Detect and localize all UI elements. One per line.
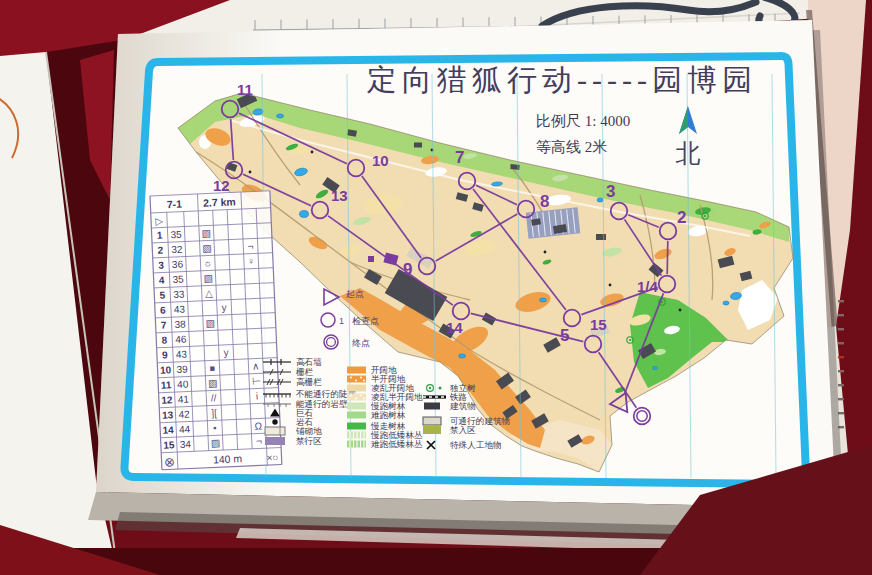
control-row-symbol-d: △ (205, 287, 213, 298)
area-swatch-dot (355, 398, 357, 400)
legend-point-label: 特殊人工地物 (450, 440, 502, 450)
control-row-code: 35 (170, 229, 182, 240)
area-swatch (347, 412, 366, 419)
pond (597, 198, 603, 202)
point-feature-dot (544, 251, 547, 254)
control-row-number: 15 (163, 439, 175, 450)
pond (459, 354, 466, 358)
control-row-symbol-g: ∧ (252, 360, 260, 371)
legend-point-label: 禁入区 (450, 425, 476, 435)
area-swatch-dot (355, 380, 357, 382)
area-swatch (347, 423, 366, 430)
control-number: 11 (237, 81, 253, 98)
tree-icon-dot (429, 387, 431, 389)
control-row-symbol-g: ⊢ (252, 375, 261, 386)
control-row-symbol-d: ▨ (211, 437, 221, 448)
legend-line-label: 栅栏 (296, 367, 314, 377)
control-row-symbol-g: ¬ (247, 241, 253, 252)
control-row-symbol-d: // (211, 392, 217, 403)
control-row-symbol-g: Ω (254, 420, 262, 431)
control-row-symbol-d: ▨ (203, 272, 213, 283)
area-swatch (347, 394, 366, 401)
card-footer-left-icon: ⊗ (164, 454, 176, 469)
tree-icon-small (439, 387, 442, 390)
control-row-number: 6 (160, 304, 166, 315)
pond (653, 367, 658, 370)
control-row-code: 32 (171, 244, 183, 255)
contour-label: 等高线 2米 (536, 139, 607, 155)
control-number: 5 (560, 326, 569, 345)
area-swatch-dot (363, 398, 365, 400)
control-description-card: 7-1 2.7 km ▷ 135▨232▨¬336☼♀435▨533△643y7… (150, 191, 282, 470)
legend-point-label: 建筑物 (449, 401, 476, 411)
legend-area-label: 难跑树林 (370, 410, 406, 420)
finish-legend-label: 终点 (352, 338, 370, 348)
control-row-code: 46 (175, 334, 187, 345)
side-text-mark (838, 370, 844, 372)
control-row-code: 38 (174, 319, 186, 330)
side-text-mark (838, 342, 844, 344)
control-row-code: 41 (178, 393, 190, 404)
control-row-number: 9 (162, 349, 168, 360)
point-feature-dot (609, 284, 612, 287)
scale-label: 比例尺 1: 4000 (536, 113, 630, 129)
side-text-mark (838, 384, 844, 386)
building (596, 234, 606, 240)
area-swatch-dot (360, 377, 362, 379)
area-swatch-dot (363, 380, 365, 382)
control-row-symbol-e: y (223, 347, 228, 358)
control-row-number: 11 (161, 379, 172, 390)
side-text-mark (838, 328, 844, 330)
control-row-number: 10 (160, 364, 172, 375)
control-row-symbol-g: ♀ (247, 255, 255, 266)
control-number: 8 (540, 192, 549, 211)
course-length: 2.7 km (203, 195, 236, 208)
control-row-symbol-g: ¬ (256, 435, 262, 446)
area-swatch (347, 367, 366, 374)
legend-line-label: 铺砌地 (295, 426, 322, 436)
control-number: 12 (213, 177, 230, 194)
card-footer-right-icon: ×○ (266, 452, 278, 464)
point-feature-dot (679, 309, 682, 312)
area-swatch (347, 385, 366, 392)
control-row-code: 42 (178, 408, 190, 419)
side-text-mark (838, 356, 844, 358)
building-icon (424, 403, 440, 410)
control-number: 9 (403, 260, 412, 279)
control-number: 3 (606, 182, 615, 201)
pond (300, 211, 309, 218)
control-row-number: 13 (162, 409, 174, 420)
control-row-code: 33 (173, 289, 185, 300)
pond (723, 301, 729, 305)
area-swatch-dot (360, 395, 362, 397)
control-row-code: 35 (172, 274, 184, 285)
control-number: 7 (455, 148, 464, 167)
passable-building-icon (423, 417, 441, 425)
start-row-symbol: ▷ (155, 215, 163, 226)
control-row-number: 5 (159, 289, 165, 300)
control-row-symbol-d: ☼ (203, 257, 213, 268)
control-row-symbol-d: ▨ (202, 242, 212, 253)
point-feature-dot (311, 151, 314, 154)
checkpoint-number: 1 (339, 316, 344, 326)
area-swatch-dot (350, 395, 352, 397)
control-row-number: 7 (161, 319, 167, 330)
area-swatch-dot (350, 377, 352, 379)
control-row-code: 43 (174, 304, 186, 315)
isolated-tree-dot (704, 215, 706, 217)
map-title: 定向猎狐行动-----园博园 (367, 63, 757, 96)
rock-icon (272, 419, 277, 424)
control-row-symbol-d: ■ (209, 363, 215, 373)
control-row-code: 39 (176, 364, 188, 375)
no-go-area-icon (265, 437, 285, 445)
control-row-number: 12 (161, 394, 173, 405)
side-text-mark (838, 300, 844, 302)
control-number: 2 (677, 208, 686, 227)
paved-area-icon (265, 427, 285, 435)
course-number: 7-1 (167, 198, 183, 211)
control-row-symbol-g: i (256, 390, 259, 401)
control-row-code: 44 (179, 423, 191, 434)
start-legend-label: 起点 (346, 289, 364, 299)
legend-line-label: 禁行区 (296, 436, 322, 446)
control-number: 14 (446, 319, 463, 336)
card-footer-distance: 140 m (213, 452, 243, 465)
control-row-symbol-d: ▨ (208, 377, 218, 388)
course-leg (667, 241, 668, 274)
control-row-code: 36 (172, 259, 184, 270)
forbidden-area-icon (423, 426, 441, 434)
control-row-code: 40 (177, 378, 189, 389)
legend-area-label: 难跑低矮林丛 (370, 439, 423, 449)
side-text-mark (838, 314, 844, 316)
control-row-number: 8 (161, 334, 167, 345)
legend-line-label: 高栅栏 (296, 377, 322, 387)
control-row-number: 4 (159, 274, 165, 285)
side-text-mark (838, 412, 844, 414)
control-row-number: 14 (162, 424, 174, 435)
legend-line-label: 高石墙 (296, 357, 322, 367)
control-number: 13 (331, 187, 348, 204)
area-swatch (347, 376, 366, 383)
control-row-number: 2 (157, 244, 163, 255)
scene: 1112101378321/4914515 定向猎狐行动-----园博园 比例尺… (0, 0, 872, 575)
area-swatch (347, 403, 366, 410)
pond (277, 114, 284, 118)
control-row-symbol-d: ][ (211, 407, 217, 418)
control-row-number: 3 (158, 259, 164, 270)
checkpoint-legend-label: 检查点 (352, 316, 379, 326)
isolated-tree-dot (629, 339, 631, 341)
control-row-symbol-d: ▨ (205, 317, 215, 328)
control-number: 15 (590, 316, 607, 333)
building (414, 143, 422, 148)
point-feature-dot (249, 171, 252, 174)
control-number: 1/4 (637, 278, 659, 295)
control-number: 10 (372, 152, 389, 169)
pond (540, 298, 547, 302)
north-label: 北 (676, 140, 701, 167)
photo-of-orienteering-map: 1112101378321/4914515 定向猎狐行动-----园博园 比例尺… (0, 0, 872, 575)
control-row-symbol-e: y (221, 302, 226, 313)
control-row-code: 43 (176, 349, 188, 360)
control-row-symbol-d: ▨ (201, 227, 211, 238)
side-text-mark (838, 398, 844, 400)
control-row-number: 1 (157, 229, 163, 240)
out-of-bounds-mark (368, 256, 374, 262)
control-row-code: 34 (180, 438, 192, 449)
